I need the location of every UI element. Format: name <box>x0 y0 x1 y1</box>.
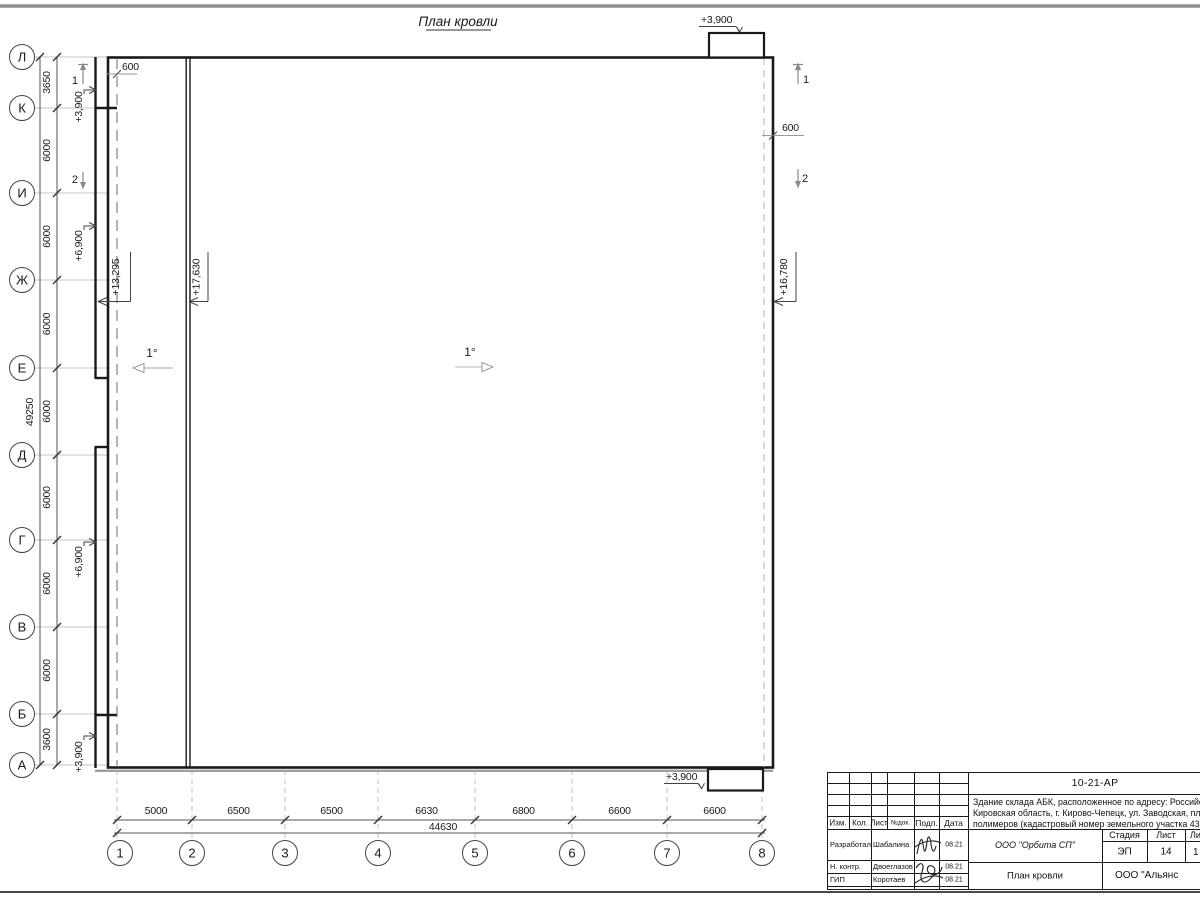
section-1-left-arrow <box>78 63 88 85</box>
tb-header-podp: Подп. <box>915 818 938 828</box>
axis-label: Г <box>18 533 25 548</box>
dim-label: 3650 <box>41 71 53 94</box>
title-block: Изм. Кол. Лист №док. Подп. Дата Разработ… <box>827 772 1200 890</box>
elevation-label: +6,900 <box>73 546 85 578</box>
tb-description-line1: Здание склада АБК, расположенное по адре… <box>973 797 1200 807</box>
tb-name: Двоеглазов <box>873 862 913 871</box>
axis-label: Д <box>18 448 27 463</box>
axis-label: Л <box>18 50 27 65</box>
section-label: 2 <box>72 174 78 186</box>
sheet-title: План кровли <box>418 14 498 30</box>
drawing-sheet: { "sheet": { "title": "План кровли" }, "… <box>0 0 1200 900</box>
dim-label: 6600 <box>703 805 726 817</box>
tb-line <box>1185 829 1186 862</box>
tb-header-izm: Изм. <box>829 818 846 827</box>
signature-korotaev <box>913 858 945 888</box>
dim-label: 6000 <box>41 486 53 509</box>
tb-header-kol: Кол. <box>852 818 868 827</box>
dim-label: 6500 <box>320 805 343 817</box>
tb-name: Шабалина <box>873 840 909 849</box>
tb-stage-label: Стадия <box>1109 830 1140 840</box>
dim-label: 6000 <box>41 312 53 335</box>
slope-label: 1° <box>146 346 158 360</box>
axis-label: 6 <box>568 846 575 861</box>
roof-plan-drawing: План кровли 3650 6000 6000 6000 6000 600… <box>0 0 1200 900</box>
tb-line <box>968 772 969 890</box>
tb-line <box>871 772 872 890</box>
building-walls <box>108 58 773 768</box>
page-title: План кровли <box>418 14 498 29</box>
axis-label: 4 <box>374 846 381 861</box>
tb-description-line3: полимеров (кадастровый номер земельного … <box>973 819 1200 829</box>
elev-wall-g: +6,900 <box>73 539 96 578</box>
tb-role: Разработал <box>830 840 871 849</box>
elev-roof-right: +16,780 <box>774 252 796 306</box>
dim-label: 6500 <box>227 805 250 817</box>
signature-shabalina <box>913 830 943 860</box>
elevation-label: +3,900 <box>73 741 85 773</box>
tb-line <box>827 772 1200 773</box>
section-label: 1 <box>803 74 809 86</box>
tb-description-line2: Кировская область, г. Кирово-Чепецк, ул.… <box>973 808 1200 818</box>
building-outline <box>95 33 774 791</box>
bottom-axis-bubbles <box>108 841 775 866</box>
elev-canopy-bottom: +3,900 <box>664 771 705 789</box>
dim-total-label: 49250 <box>24 398 36 427</box>
elevation-label: +6,900 <box>73 230 85 262</box>
axis-label: 8 <box>758 846 765 861</box>
tb-doc-code: 10-21-АР <box>1072 777 1119 789</box>
left-dimension-labels: 3650 6000 6000 6000 6000 6000 6000 6000 … <box>24 71 53 751</box>
elev-wall-a: +3,900 <box>73 733 96 773</box>
tb-line <box>827 886 968 887</box>
tb-contractor: ООО "Альянс <box>1115 870 1178 881</box>
elevation-label: +16,780 <box>778 258 790 295</box>
tb-header-ndok: №док. <box>891 819 910 826</box>
canopy-top <box>709 33 764 58</box>
tb-sheet-value: 14 <box>1160 847 1171 858</box>
tb-sheet-label: Лист <box>1156 830 1176 840</box>
tb-date: 08.21 <box>945 842 963 849</box>
axis-label: Ж <box>16 273 28 288</box>
dim-total-label: 44630 <box>429 821 458 833</box>
tb-header-list: Лист <box>870 818 887 827</box>
section-label: 1 <box>72 75 78 87</box>
slope-label: 1° <box>464 345 476 359</box>
dim-label: 6000 <box>41 225 53 248</box>
axis-label: 5 <box>471 846 478 861</box>
elevation-label: +3,900 <box>666 771 698 783</box>
canopy-bottom <box>708 769 763 791</box>
axis-label: 3 <box>281 846 288 861</box>
dim-label: 6630 <box>415 805 438 817</box>
tb-line <box>827 829 968 830</box>
tb-line <box>968 794 1200 795</box>
tb-stage-value: ЭП <box>1117 847 1131 858</box>
tb-sheets-label: Ли <box>1190 830 1200 840</box>
section-2-left-arrow <box>80 172 86 190</box>
dim-label: 6000 <box>41 659 53 682</box>
dim-label: 5000 <box>145 805 168 817</box>
tb-role: ГИП <box>830 875 845 884</box>
tb-sheets-value: 1 <box>1193 847 1199 858</box>
tb-line <box>827 860 968 861</box>
tb-date: 08.21 <box>945 864 963 871</box>
tb-role: Н. контр. <box>830 862 861 871</box>
elevation-label: +3,900 <box>701 14 733 26</box>
tb-drawing-title: План кровли <box>1007 871 1063 882</box>
elev-wall-zh: +6,900 <box>73 223 96 262</box>
dim-label: 6600 <box>608 805 631 817</box>
tb-header-data: Дата <box>944 818 963 828</box>
tb-line <box>827 873 968 874</box>
tb-date: 08.21 <box>945 877 963 884</box>
axis-label: 2 <box>188 846 195 861</box>
dim-label: 6000 <box>41 400 53 423</box>
axis-label: А <box>18 758 27 773</box>
dim-label: 6000 <box>41 139 53 162</box>
tb-line <box>827 889 1200 890</box>
dim-label: 6800 <box>512 805 535 817</box>
axis-label: 7 <box>663 846 670 861</box>
section-label: 2 <box>802 173 808 185</box>
bottom-dimension-labels: 5000 6500 6500 6630 6800 6600 6600 44630 <box>145 805 726 833</box>
dim-label: 6000 <box>41 572 53 595</box>
axis-label: Е <box>18 361 27 376</box>
section-2-right-arrow <box>795 169 801 189</box>
axis-label: И <box>17 186 26 201</box>
tb-line <box>1147 829 1148 862</box>
tb-line <box>1102 829 1103 890</box>
bottom-axis-labels: 1 2 3 4 5 6 7 8 <box>116 846 765 861</box>
dim-label: 3600 <box>41 728 53 751</box>
elev-wall-k: +3,900 <box>73 87 96 123</box>
section-1-right-arrow <box>793 63 803 85</box>
tb-line <box>849 772 850 829</box>
axis-label: 1 <box>116 846 123 861</box>
axis-label: К <box>18 101 26 116</box>
offset-label: 600 <box>782 122 799 134</box>
elevation-label: +3,900 <box>73 91 85 123</box>
elev-canopy-top: +3,900 <box>699 14 743 33</box>
axis-label: Б <box>18 707 27 722</box>
offset-label: 600 <box>122 61 139 73</box>
axis-label: В <box>18 620 27 635</box>
elevation-label: +17,630 <box>191 258 203 295</box>
tb-line <box>968 862 1200 863</box>
tb-name: Коротаев <box>873 875 905 884</box>
elevation-label: +13,295 <box>110 258 122 295</box>
tb-company: ООО "Орбита СП" <box>995 840 1075 850</box>
